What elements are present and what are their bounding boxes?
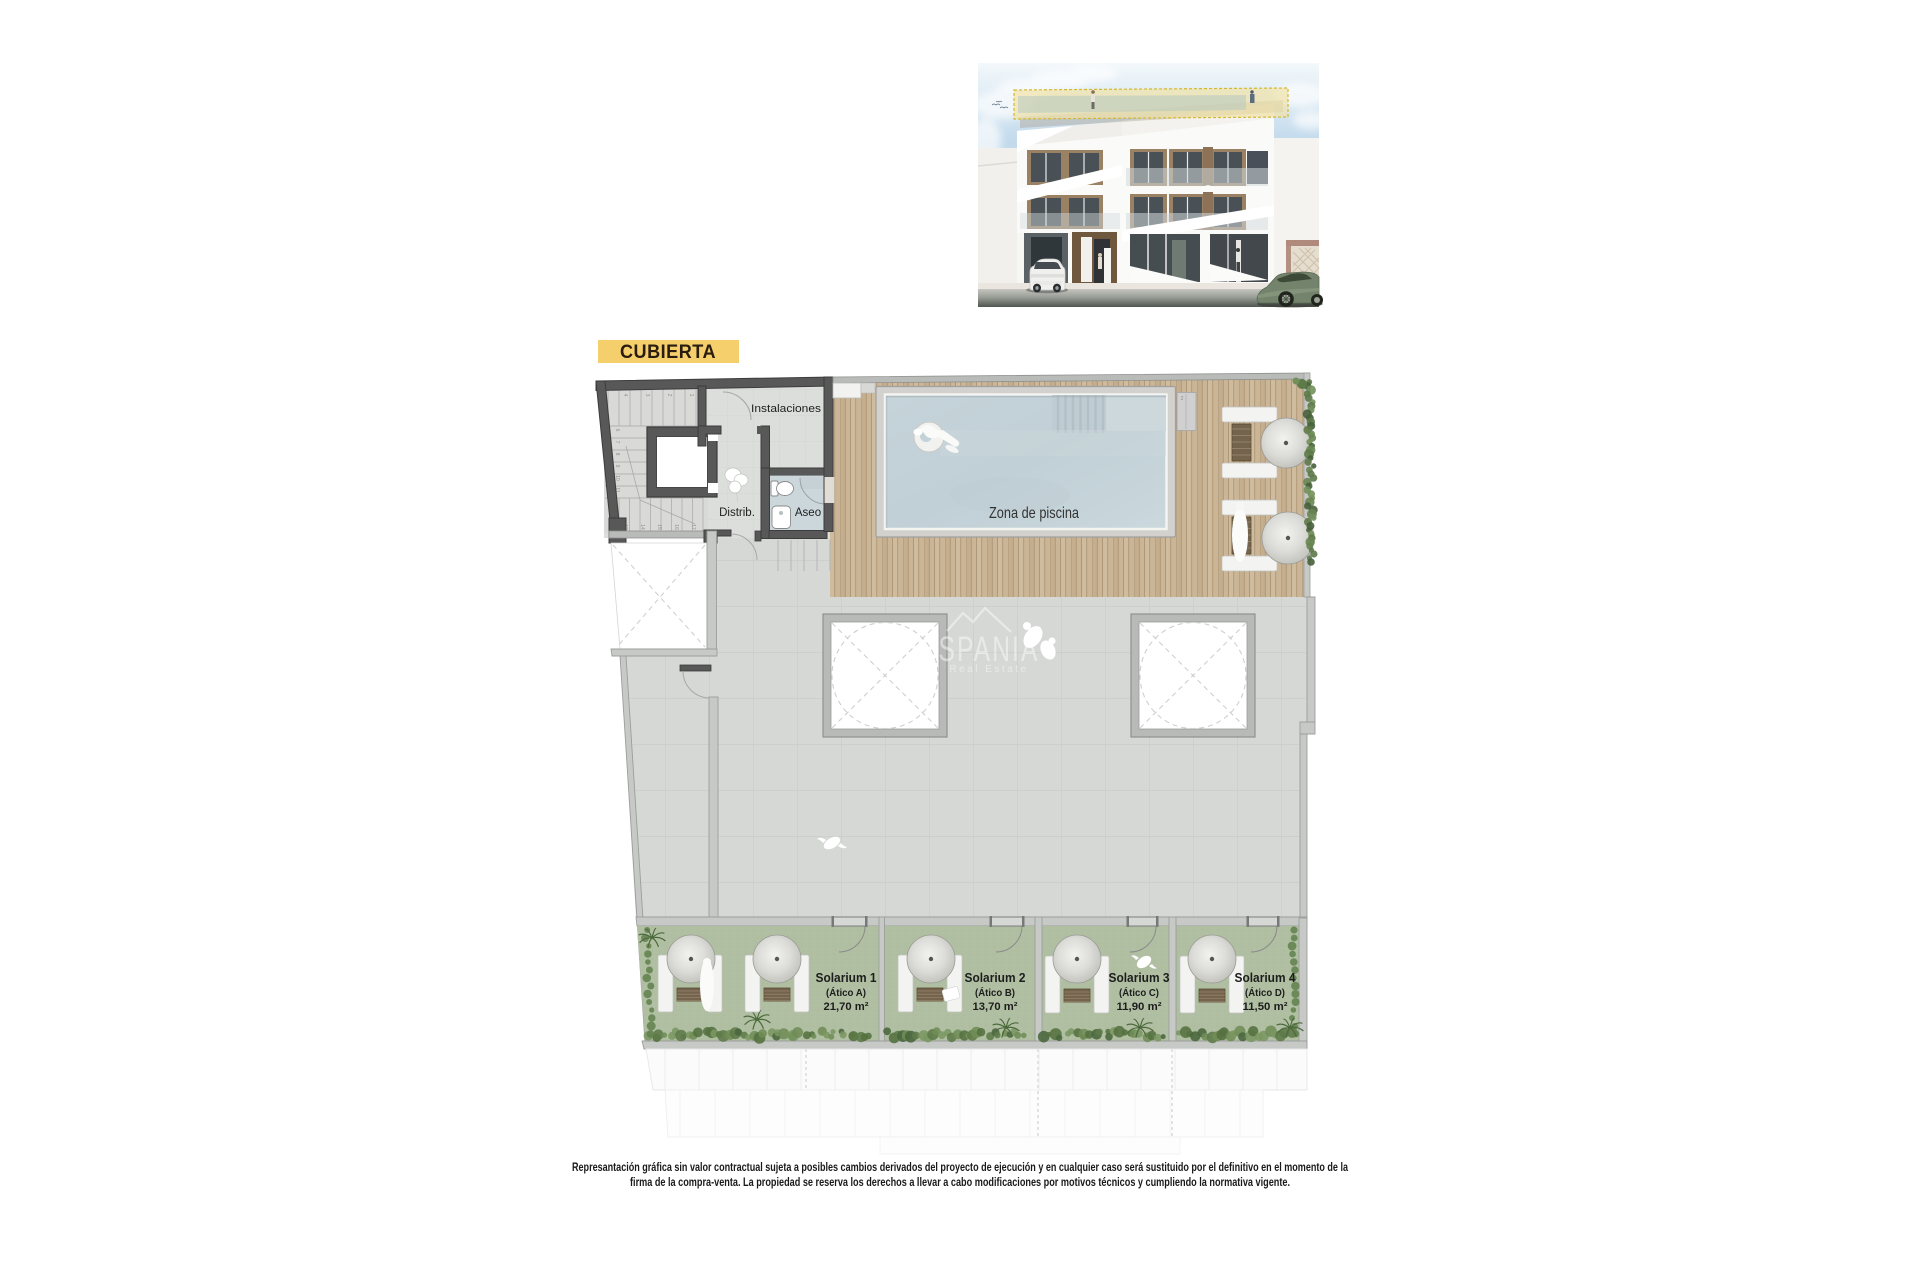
- svg-text:Represantación gráfica sin val: Represantación gráfica sin valor contrac…: [572, 1162, 1348, 1174]
- svg-text:3: 3: [644, 394, 650, 397]
- svg-text:14: 14: [639, 524, 645, 530]
- svg-text:Solarium 4: Solarium 4: [1235, 970, 1297, 985]
- svg-text:8: 8: [614, 453, 620, 456]
- svg-text:1: 1: [688, 394, 694, 397]
- svg-text:4: 4: [622, 394, 628, 397]
- svg-text:firma de la compra-venta. La p: firma de la compra-venta. La propiedad s…: [630, 1177, 1290, 1189]
- svg-text:Zona de piscina: Zona de piscina: [989, 505, 1079, 522]
- svg-text:Solarium 2: Solarium 2: [965, 970, 1026, 985]
- svg-text:Distrib.: Distrib.: [719, 507, 755, 519]
- svg-text:Solarium 3: Solarium 3: [1109, 970, 1170, 985]
- svg-text:15: 15: [656, 524, 662, 530]
- svg-text:9: 9: [614, 465, 620, 468]
- svg-text:17: 17: [690, 524, 696, 530]
- svg-text:Real Estate: Real Estate: [949, 664, 1028, 675]
- svg-text:(Ático B): (Ático B): [975, 986, 1015, 999]
- svg-text:6: 6: [614, 429, 620, 432]
- svg-text:CUBIERTA: CUBIERTA: [620, 342, 716, 363]
- svg-text:16: 16: [673, 524, 679, 530]
- svg-text:(Ático C): (Ático C): [1119, 986, 1159, 999]
- svg-text:13,70 m²: 13,70 m²: [973, 1001, 1018, 1013]
- svg-text:(Ático D): (Ático D): [1245, 986, 1285, 999]
- svg-text:21,70 m²: 21,70 m²: [824, 1001, 869, 1013]
- svg-text:(Ático A): (Ático A): [826, 986, 866, 999]
- svg-text:2: 2: [666, 394, 672, 397]
- svg-text:11,90 m²: 11,90 m²: [1117, 1001, 1162, 1013]
- svg-text:7: 7: [614, 441, 620, 444]
- svg-text:2: 2: [1181, 396, 1184, 402]
- svg-text:Aseo: Aseo: [795, 507, 821, 519]
- svg-text:Instalaciones: Instalaciones: [751, 403, 822, 415]
- svg-text:Solarium 1: Solarium 1: [816, 970, 877, 985]
- svg-text:11,50 m²: 11,50 m²: [1243, 1001, 1288, 1013]
